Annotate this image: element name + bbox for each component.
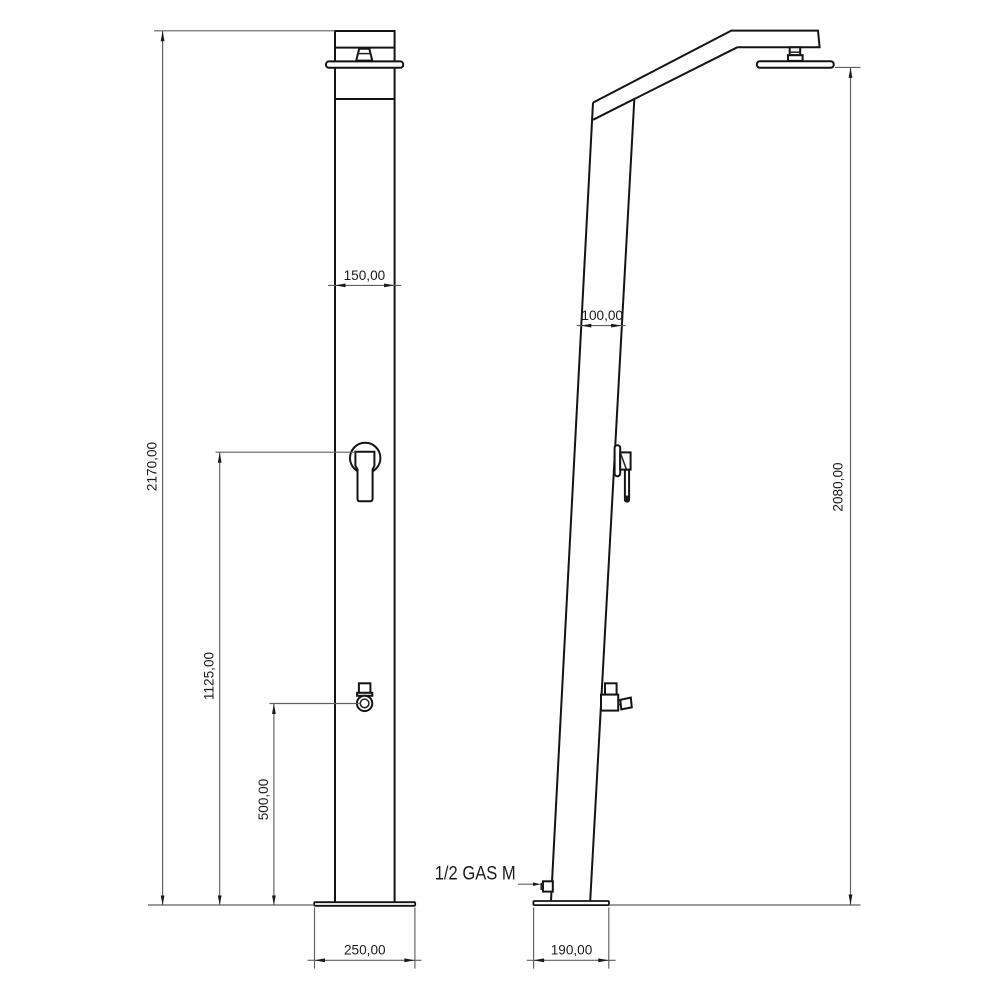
svg-text:1/2 GAS M: 1/2 GAS M [435, 862, 516, 884]
svg-text:250,00: 250,00 [344, 943, 386, 958]
svg-text:190,00: 190,00 [551, 943, 593, 958]
svg-text:2170,00: 2170,00 [144, 441, 159, 491]
svg-text:500,00: 500,00 [256, 778, 271, 820]
svg-text:150,00: 150,00 [344, 268, 386, 283]
svg-text:1125,00: 1125,00 [202, 652, 217, 701]
svg-text:2080,00: 2080,00 [831, 462, 846, 512]
svg-text:100,00: 100,00 [581, 308, 623, 323]
